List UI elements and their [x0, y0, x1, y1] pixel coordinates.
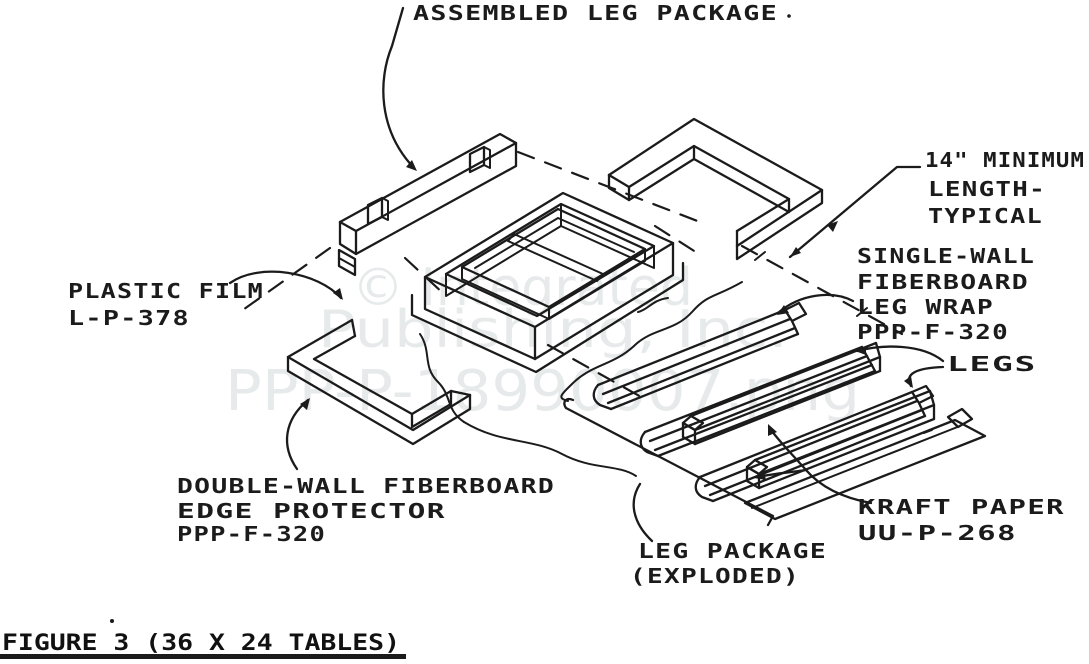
label-leg-wrap-2: FIBERBOARD: [857, 270, 1029, 294]
label-kraft-paper-1: KRAFT PAPER: [858, 495, 1065, 519]
label-leg-package-1: LEG PACKAGE: [638, 539, 827, 563]
label-edge-protector-3: PPP-F-320: [177, 522, 326, 546]
edge-protector-top-drawing: [609, 119, 822, 259]
assembled-package-drawing: [339, 134, 516, 275]
label-plastic-film-1: PLASTIC FILM: [68, 279, 264, 303]
figure-caption: FIGURE 3 (36 X 24 TABLES): [0, 631, 406, 659]
label-min-length-3: TYPICAL: [928, 204, 1043, 228]
label-edge-protector-2: EDGE PROTECTOR: [177, 499, 446, 523]
label-assembled-leg-package: ASSEMBLED LEG PACKAGE: [413, 1, 778, 25]
watermark-line-2: Publishing, Inc.: [318, 300, 788, 360]
label-plastic-film-2: L-P-378: [68, 306, 190, 330]
label-leg-wrap-4: PPP-F-320: [857, 320, 1009, 344]
label-kraft-paper-2: UU-P-268: [858, 521, 1017, 545]
caption-text: FIGURE 3 (36 X 24 TABLES): [2, 631, 400, 656]
label-min-length-2: LENGTH-: [928, 177, 1046, 201]
label-legs: LEGS: [947, 352, 1037, 376]
figure-page: © Integrated Publishing, Inc. PPP-P-1899…: [0, 0, 1089, 664]
label-edge-protector-1: DOUBLE-WALL FIBERBOARD: [177, 474, 555, 498]
packaging-diagram: © Integrated Publishing, Inc. PPP-P-1899…: [0, 0, 1089, 664]
label-leg-wrap-3: LEG WRAP: [857, 295, 994, 319]
label-leg-wrap-1: SINGLE-WALL: [857, 244, 1035, 268]
label-min-length-1: 14" MINIMUM: [925, 148, 1085, 172]
caption-underline: [0, 654, 406, 659]
label-leg-package-2: (EXPLODED): [630, 564, 800, 588]
